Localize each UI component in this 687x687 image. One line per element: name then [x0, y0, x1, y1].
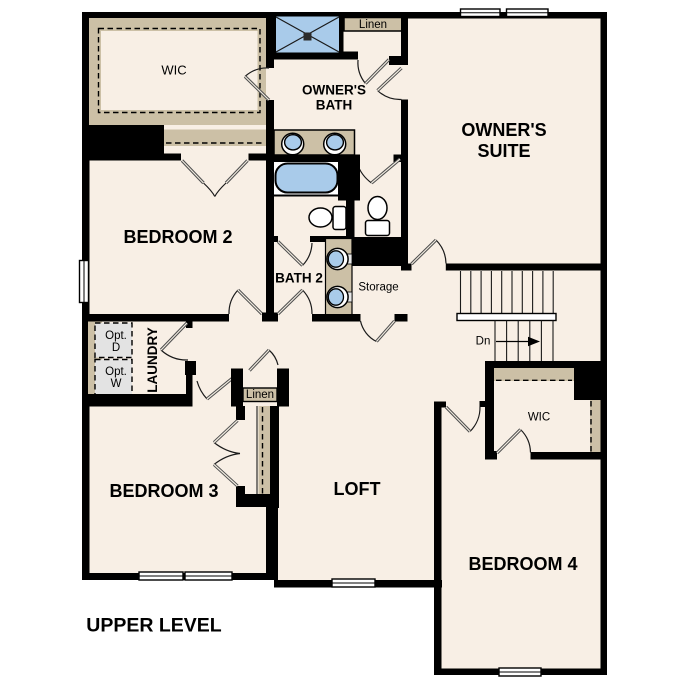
svg-text:WIC: WIC: [161, 63, 186, 78]
svg-text:Linen: Linen: [359, 19, 387, 31]
svg-text:LOFT: LOFT: [334, 479, 381, 499]
svg-text:WIC: WIC: [528, 412, 550, 424]
svg-text:D: D: [112, 342, 120, 354]
svg-text:BEDROOM 4: BEDROOM 4: [468, 554, 577, 574]
svg-text:LAUNDRY: LAUNDRY: [145, 327, 160, 393]
svg-text:Dn: Dn: [476, 336, 491, 348]
svg-text:SUITE: SUITE: [477, 141, 530, 161]
svg-text:OWNER'S: OWNER'S: [302, 83, 366, 98]
svg-text:Linen: Linen: [246, 389, 274, 401]
svg-text:BEDROOM 3: BEDROOM 3: [109, 481, 218, 501]
svg-text:OWNER'S: OWNER'S: [461, 120, 546, 140]
svg-text:BEDROOM 2: BEDROOM 2: [123, 227, 232, 247]
svg-text:UPPER LEVEL: UPPER LEVEL: [86, 615, 222, 637]
svg-text:Opt.: Opt.: [105, 366, 127, 378]
svg-text:Storage: Storage: [358, 282, 398, 294]
svg-text:BATH 2: BATH 2: [275, 271, 323, 286]
svg-text:Opt.: Opt.: [105, 330, 127, 342]
svg-text:BATH: BATH: [316, 98, 353, 113]
svg-text:W: W: [111, 378, 122, 390]
